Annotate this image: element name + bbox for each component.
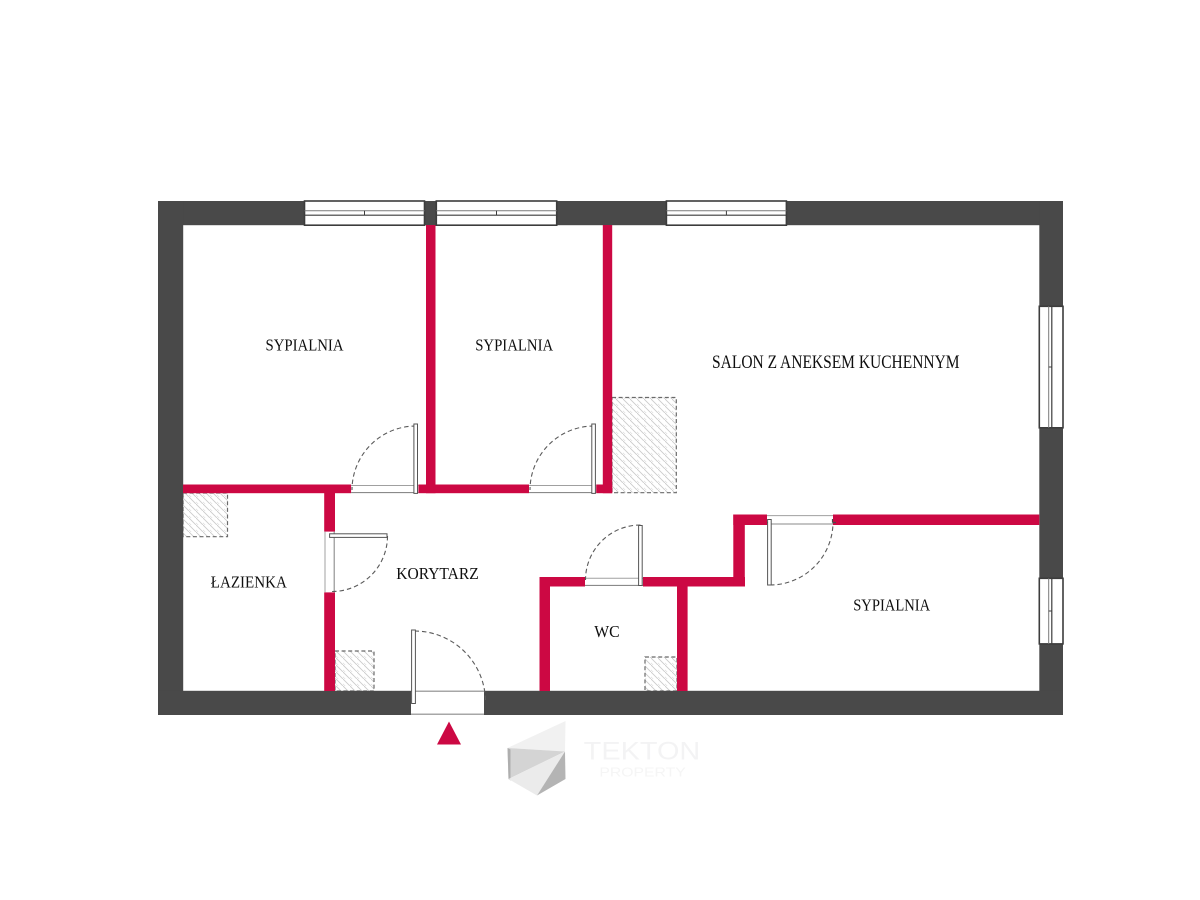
svg-text:ŁAZIENKA: ŁAZIENKA: [211, 573, 288, 592]
svg-text:SALON Z ANEKSEM KUCHENNYM: SALON Z ANEKSEM KUCHENNYM: [712, 352, 960, 373]
svg-text:SYPIALNIA: SYPIALNIA: [475, 336, 554, 355]
svg-text:SYPIALNIA: SYPIALNIA: [853, 596, 931, 615]
svg-text:KORYTARZ: KORYTARZ: [396, 564, 479, 583]
svg-text:TEKTON: TEKTON: [584, 738, 701, 766]
svg-text:WC: WC: [594, 622, 619, 641]
svg-text:PROPERTY: PROPERTY: [599, 764, 686, 779]
svg-text:SYPIALNIA: SYPIALNIA: [266, 336, 345, 355]
